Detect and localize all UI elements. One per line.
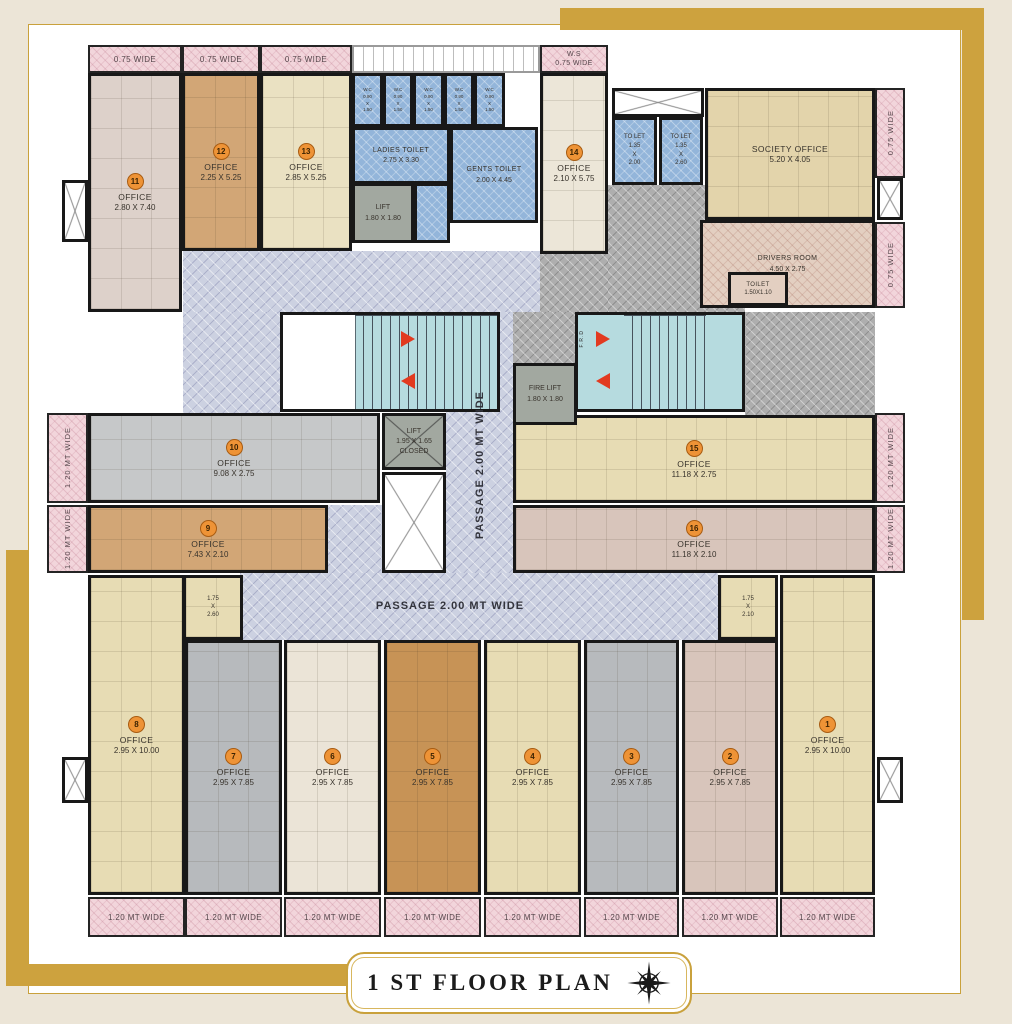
- room-number-badge: 6: [324, 748, 341, 765]
- staircase-right: [575, 312, 745, 412]
- text-label: 0.75 WIDE: [555, 59, 592, 68]
- room-number-badge: 1: [819, 716, 836, 733]
- text-label: 9.08 X 2.75: [214, 469, 255, 478]
- room-office-12: 12OFFICE2.25 X 5.25: [182, 73, 260, 251]
- room-tolet-2: TO LET1.35X2.60: [659, 117, 703, 185]
- room-lift-closed: LIFT1.95 X 1.65CLOSED: [382, 413, 446, 470]
- text-label: 2.95 X 7.85: [312, 778, 353, 787]
- plan-title: 1 ST FLOOR PLAN: [367, 970, 613, 996]
- passage-label-horizontal: PASSAGE 2.00 MT WIDE: [350, 596, 550, 616]
- text-label: 2.95 X 7.85: [710, 778, 751, 787]
- room-number-badge: 9: [200, 520, 217, 537]
- text-label: 1.95 X 1.65: [396, 437, 432, 446]
- text-label: TO LET: [624, 134, 645, 142]
- balcony-bottom-1: 1.20 MT WIDE: [88, 897, 185, 937]
- room-number-badge: 11: [127, 173, 144, 190]
- text-label: 0.90: [363, 94, 372, 100]
- room-fire-lift: FIRE LIFT1.80 X 1.80: [513, 363, 577, 425]
- text-label: X: [366, 101, 369, 107]
- text-label: 0.75 WIDE: [886, 110, 895, 155]
- text-label: 0.75 WIDE: [285, 55, 327, 64]
- text-label: SOCIETY OFFICE: [752, 144, 828, 154]
- room-office-2: 2OFFICE2.95 X 7.85: [682, 640, 778, 895]
- text-label: OFFICE: [217, 767, 251, 777]
- balcony-bottom-4: 1.20 MT WIDE: [384, 897, 481, 937]
- text-label: 2.95 X 10.00: [805, 746, 850, 755]
- text-label: X: [632, 152, 636, 160]
- staircase-left-arrow-down: [401, 373, 415, 389]
- text-label: LIFT: [407, 427, 421, 436]
- room-ladies-toilet: LADIES TOILET2.75 X 3.30: [352, 127, 450, 184]
- text-label: W.C: [363, 87, 372, 93]
- room-wc-4: W.C0.90X1.50: [444, 73, 474, 127]
- room-number-badge: 14: [566, 144, 583, 161]
- room-office-3: 3OFFICE2.95 X 7.85: [584, 640, 679, 895]
- text-label: W.C: [394, 87, 403, 93]
- text-label: 1.80 X 1.80: [527, 395, 563, 404]
- lobby-hatch-3: [513, 312, 575, 363]
- text-label: 1.20 MT WIDE: [799, 913, 856, 922]
- passage-left: [183, 312, 280, 413]
- room-office-16: 16OFFICE11.18 X 2.10: [513, 505, 875, 573]
- room-number-badge: 12: [213, 143, 230, 160]
- text-label: 1.50: [455, 107, 464, 113]
- text-label: OFFICE: [677, 539, 711, 549]
- room-office-6: 6OFFICE2.95 X 7.85: [284, 640, 381, 895]
- room-office-14: 14OFFICE2.10 X 5.75: [540, 73, 608, 254]
- text-label: 1.20 MT WIDE: [205, 913, 262, 922]
- room-lift: LIFT1.80 X 1.80: [352, 183, 414, 243]
- text-label: 1.20 MT WIDE: [886, 508, 895, 569]
- room-gents-toilet: GENTS TOILET2.00 X 4.45: [450, 127, 538, 223]
- balcony-right-3: 1.20 MT WIDE: [875, 413, 905, 503]
- text-label: 1.20 MT WIDE: [886, 427, 895, 488]
- text-label: X: [396, 101, 399, 107]
- text-label: 2.80 X 7.40: [115, 203, 156, 212]
- open-strip: [352, 45, 540, 73]
- text-label: 1.50X1.10: [744, 290, 771, 297]
- text-label: X: [457, 101, 460, 107]
- text-label: 0.90: [455, 94, 464, 100]
- balcony-bottom-2: 1.20 MT WIDE: [185, 897, 282, 937]
- text-label: 2.60: [207, 612, 219, 619]
- text-label: 2.00 X 4.45: [476, 176, 512, 185]
- room-number-badge: 3: [623, 748, 640, 765]
- room-number-badge: 16: [686, 520, 703, 537]
- room-office-13: 13OFFICE2.85 X 5.25: [260, 73, 352, 251]
- room-office-10: 10OFFICE9.08 X 2.75: [88, 413, 380, 503]
- text-label: 2.95 X 7.85: [512, 778, 553, 787]
- balcony-bottom-8: 1.20 MT WIDE: [780, 897, 875, 937]
- room-wc-1: W.C0.90X1.50: [352, 73, 383, 127]
- text-label: 0.90: [424, 94, 433, 100]
- room-number-badge: 4: [524, 748, 541, 765]
- text-label: OFFICE: [316, 767, 350, 777]
- text-label: 1.20 MT WIDE: [63, 427, 72, 488]
- passage-label-vertical: PASSAGE 2.00 MT WIDE: [462, 330, 498, 600]
- duct-left-top: [62, 180, 88, 242]
- text-label: CLOSED: [400, 447, 429, 456]
- text-label: OFFICE: [615, 767, 649, 777]
- text-label: GENTS TOILET: [466, 165, 521, 174]
- text-label: X: [211, 604, 215, 611]
- floor-plan-canvas: 11OFFICE2.80 X 7.4012OFFICE2.25 X 5.2513…: [0, 0, 1012, 1024]
- text-label: OFFICE: [217, 458, 251, 468]
- text-label: 1.20 MT WIDE: [603, 913, 660, 922]
- text-label: 1.20 MT WIDE: [701, 913, 758, 922]
- text-label: 2.85 X 5.25: [286, 173, 327, 182]
- balcony-bottom-6: 1.20 MT WIDE: [584, 897, 679, 937]
- text-label: 1.50: [485, 107, 494, 113]
- room-society-office: SOCIETY OFFICE5.20 X 4.05: [705, 88, 875, 220]
- text-label: OFFICE: [204, 162, 238, 172]
- duct-core: [382, 472, 446, 573]
- text-label: OFFICE: [416, 767, 450, 777]
- balcony-top-2: 0.75 WIDE: [182, 45, 260, 73]
- text-label: TO LET: [671, 134, 692, 142]
- room-number-badge: 15: [686, 440, 703, 457]
- room-wash-area: [414, 183, 450, 243]
- duct-tolet: [612, 88, 704, 117]
- text-label: 2.95 X 7.85: [412, 778, 453, 787]
- text-label: OFFICE: [811, 735, 845, 745]
- text-label: 0.90: [394, 94, 403, 100]
- room-office-4: 4OFFICE2.95 X 7.85: [484, 640, 581, 895]
- text-label: OFFICE: [557, 163, 591, 173]
- text-label: PASSAGE 2.00 MT WIDE: [376, 600, 524, 612]
- text-label: W.C: [455, 87, 464, 93]
- text-label: 2.75 X 3.30: [383, 156, 419, 165]
- balcony-right-4: 1.20 MT WIDE: [875, 505, 905, 573]
- text-label: OFFICE: [677, 459, 711, 469]
- room-office-1: 1OFFICE2.95 X 10.00: [780, 575, 875, 895]
- staircase-right-arrow-down: [596, 373, 610, 389]
- compass-icon: [627, 961, 671, 1005]
- room-number-badge: 5: [424, 748, 441, 765]
- text-label: LIFT: [376, 203, 390, 212]
- plan-title-box: 1 ST FLOOR PLAN: [346, 952, 692, 1014]
- text-label: 1.20 MT WIDE: [504, 913, 561, 922]
- text-label: OFFICE: [289, 162, 323, 172]
- text-label: 0.90: [485, 94, 494, 100]
- staircase-right-arrow-up: [596, 331, 610, 347]
- text-label: X: [427, 101, 430, 107]
- text-label: 0.75 WIDE: [114, 55, 156, 64]
- balcony-ws: W.S0.75 WIDE: [540, 45, 608, 73]
- text-label: OFFICE: [118, 192, 152, 202]
- text-label: W.S: [567, 50, 581, 59]
- room-number-badge: 8: [128, 716, 145, 733]
- text-label: 2.00: [629, 160, 641, 168]
- text-label: FIRE LIFT: [529, 384, 561, 393]
- room-wc-5: W.C0.90X1.50: [474, 73, 505, 127]
- room-number-badge: 2: [722, 748, 739, 765]
- text-label: X: [679, 152, 683, 160]
- balcony-top-1: 0.75 WIDE: [88, 45, 182, 73]
- text-label: 11.18 X 2.10: [672, 550, 717, 559]
- room-office-8: 8OFFICE2.95 X 10.00: [88, 575, 185, 895]
- duct-left-bottom: [62, 757, 88, 803]
- duct-right-bottom: [877, 757, 903, 803]
- frame-gold-top: [560, 8, 984, 30]
- text-label: OFFICE: [713, 767, 747, 777]
- frame-gold-left: [6, 550, 28, 986]
- room-wc-3: W.C0.90X1.50: [413, 73, 444, 127]
- room-drivers-toilet: TOILET1.50X1.10: [728, 272, 788, 306]
- text-label: 1.50: [363, 107, 372, 113]
- text-label: 1.50: [394, 107, 403, 113]
- passage-upper: [183, 251, 540, 312]
- room-office-5: 5OFFICE2.95 X 7.85: [384, 640, 481, 895]
- room-tolet-1: TO LET1.35X2.00: [612, 117, 657, 185]
- duct-right-top: [877, 178, 903, 220]
- text-label: 1.20 MT WIDE: [404, 913, 461, 922]
- text-label: OFFICE: [516, 767, 550, 777]
- text-label: 2.25 X 5.25: [201, 173, 242, 182]
- text-label: OFFICE: [191, 539, 225, 549]
- balcony-bottom-5: 1.20 MT WIDE: [484, 897, 581, 937]
- text-label: 1.35: [629, 143, 641, 151]
- text-label: 1.20 MT WIDE: [63, 508, 72, 569]
- lobby-hatch-4: [745, 312, 875, 415]
- frd-label: F.R.D: [576, 316, 588, 362]
- room-nook-8: 1.75X2.60: [183, 575, 243, 640]
- room-office-15: 15OFFICE11.18 X 2.75: [513, 415, 875, 503]
- text-label: 0.75 WIDE: [886, 242, 895, 287]
- text-label: 5.20 X 4.05: [770, 155, 811, 164]
- balcony-right-2: 0.75 WIDE: [875, 222, 905, 308]
- text-label: DRIVERS ROOM: [758, 254, 818, 263]
- room-number-badge: 10: [226, 439, 243, 456]
- room-number-badge: 13: [298, 143, 315, 160]
- room-office-7: 7OFFICE2.95 X 7.85: [185, 640, 282, 895]
- text-label: W.C: [485, 87, 494, 93]
- text-label: 2.10 X 5.75: [554, 174, 595, 183]
- text-label: 1.75: [742, 596, 754, 603]
- text-label: 2.95 X 7.85: [611, 778, 652, 787]
- room-number-badge: 7: [225, 748, 242, 765]
- text-label: 1.20 MT WIDE: [304, 913, 361, 922]
- balcony-bottom-7: 1.20 MT WIDE: [682, 897, 778, 937]
- balcony-bottom-3: 1.20 MT WIDE: [284, 897, 381, 937]
- text-label: F.R.D: [579, 330, 585, 348]
- text-label: OFFICE: [120, 735, 154, 745]
- text-label: 1.75: [207, 596, 219, 603]
- text-label: 2.10: [742, 612, 754, 619]
- text-label: 11.18 X 2.75: [672, 470, 717, 479]
- text-label: W.C: [424, 87, 433, 93]
- lobby-hatch-2: [540, 254, 608, 312]
- text-label: 2.95 X 10.00: [114, 746, 159, 755]
- text-label: 1.35: [675, 143, 687, 151]
- balcony-right-1: 0.75 WIDE: [875, 88, 905, 178]
- room-office-11: 11OFFICE2.80 X 7.40: [88, 73, 182, 312]
- staircase-left-landing: [283, 315, 356, 409]
- text-label: 7.43 X 2.10: [188, 550, 229, 559]
- text-label: X: [746, 604, 750, 611]
- room-office-9: 9OFFICE7.43 X 2.10: [88, 505, 328, 573]
- text-label: 2.60: [675, 160, 687, 168]
- balcony-left-1: 1.20 MT WIDE: [47, 413, 88, 503]
- room-wc-2: W.C0.90X1.50: [383, 73, 413, 127]
- frame-gold-right: [962, 8, 984, 620]
- balcony-left-2: 1.20 MT WIDE: [47, 505, 88, 573]
- text-label: PASSAGE 2.00 MT WIDE: [474, 391, 486, 539]
- text-label: 1.50: [424, 107, 433, 113]
- text-label: 0.75 WIDE: [200, 55, 242, 64]
- text-label: 1.80 X 1.80: [365, 214, 401, 223]
- staircase-left-arrow-up: [401, 331, 415, 347]
- room-nook-1: 1.75X2.10: [718, 575, 778, 640]
- text-label: TOILET: [746, 282, 769, 289]
- balcony-top-3: 0.75 WIDE: [260, 45, 352, 73]
- text-label: 1.20 MT WIDE: [108, 913, 165, 922]
- text-label: 2.95 X 7.85: [213, 778, 254, 787]
- text-label: X: [488, 101, 491, 107]
- text-label: LADIES TOILET: [373, 146, 429, 155]
- staircase-right-treads: [624, 315, 706, 409]
